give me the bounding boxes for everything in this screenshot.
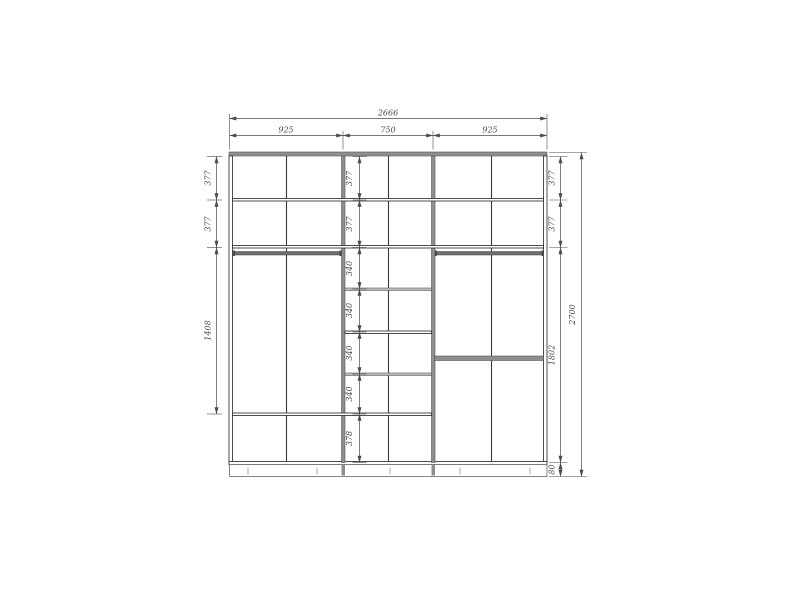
dim-width-sections: 925 750 925 bbox=[230, 126, 548, 136]
rod-end-cap bbox=[233, 251, 235, 257]
wardrobe-dimension-drawing: 2666 925 750 925 377 377 1408 bbox=[0, 0, 800, 600]
dim-right-tall-label: 1802 bbox=[548, 345, 557, 365]
dimension-annotations: 2666 925 750 925 377 377 1408 bbox=[204, 109, 588, 477]
dim-left-row2-label: 377 bbox=[204, 215, 213, 231]
cabinet-structure bbox=[229, 152, 547, 477]
plinth-stub-right bbox=[432, 465, 436, 476]
hanging-rod-left bbox=[235, 252, 341, 256]
dim-height-overall-label: 2700 bbox=[568, 304, 577, 325]
rod-end-cap bbox=[435, 251, 437, 257]
plinth-stub-left bbox=[342, 465, 346, 476]
dim-width-overall-label: 2666 bbox=[377, 109, 398, 118]
right-section-thick-shelf bbox=[435, 356, 544, 361]
bottom-shelf-left-middle bbox=[233, 413, 432, 416]
shelf-row2 bbox=[233, 246, 544, 249]
dim-middle-row6-label: 340 bbox=[345, 386, 354, 401]
dim-right-row2-label: 377 bbox=[548, 215, 557, 231]
bottom-panel bbox=[229, 462, 547, 465]
dim-left-row1-label: 377 bbox=[204, 169, 213, 185]
dim-middle-row1-label: 377 bbox=[345, 170, 354, 186]
right-side-panel bbox=[544, 156, 548, 465]
dim-middle-row3-label: 340 bbox=[345, 261, 354, 276]
plinth-base bbox=[230, 465, 548, 477]
dim-width-overall: 2666 bbox=[230, 109, 548, 119]
dim-left-heights: 377 377 1408 bbox=[204, 157, 223, 415]
hanging-rod-right bbox=[437, 252, 543, 256]
section-divider-right bbox=[432, 156, 436, 463]
dim-middle-row4-label: 340 bbox=[345, 303, 354, 318]
left-side-panel bbox=[229, 156, 233, 465]
shelf-row1 bbox=[233, 199, 544, 202]
rod-end-cap bbox=[340, 251, 342, 257]
dim-middle-row5-label: 340 bbox=[345, 345, 354, 360]
dim-right-row1-label: 377 bbox=[548, 169, 557, 185]
dim-width-right-label: 925 bbox=[482, 126, 497, 135]
rod-end-cap bbox=[542, 251, 544, 257]
dim-middle-heights: 377 377 340 340 340 340 378 bbox=[345, 157, 367, 463]
dim-width-middle-label: 750 bbox=[380, 126, 395, 135]
drawing-canvas: 2666 925 750 925 377 377 1408 bbox=[0, 0, 800, 600]
dim-middle-row2-label: 377 bbox=[345, 215, 354, 231]
dim-middle-row7-label: 378 bbox=[345, 431, 354, 446]
dim-width-left-label: 925 bbox=[278, 126, 293, 135]
dim-height-overall: 2700 bbox=[549, 153, 587, 477]
dim-plinth-height-label: 80 bbox=[548, 464, 557, 474]
dim-left-hanging-label: 1408 bbox=[204, 320, 213, 340]
top-panel bbox=[229, 152, 547, 156]
